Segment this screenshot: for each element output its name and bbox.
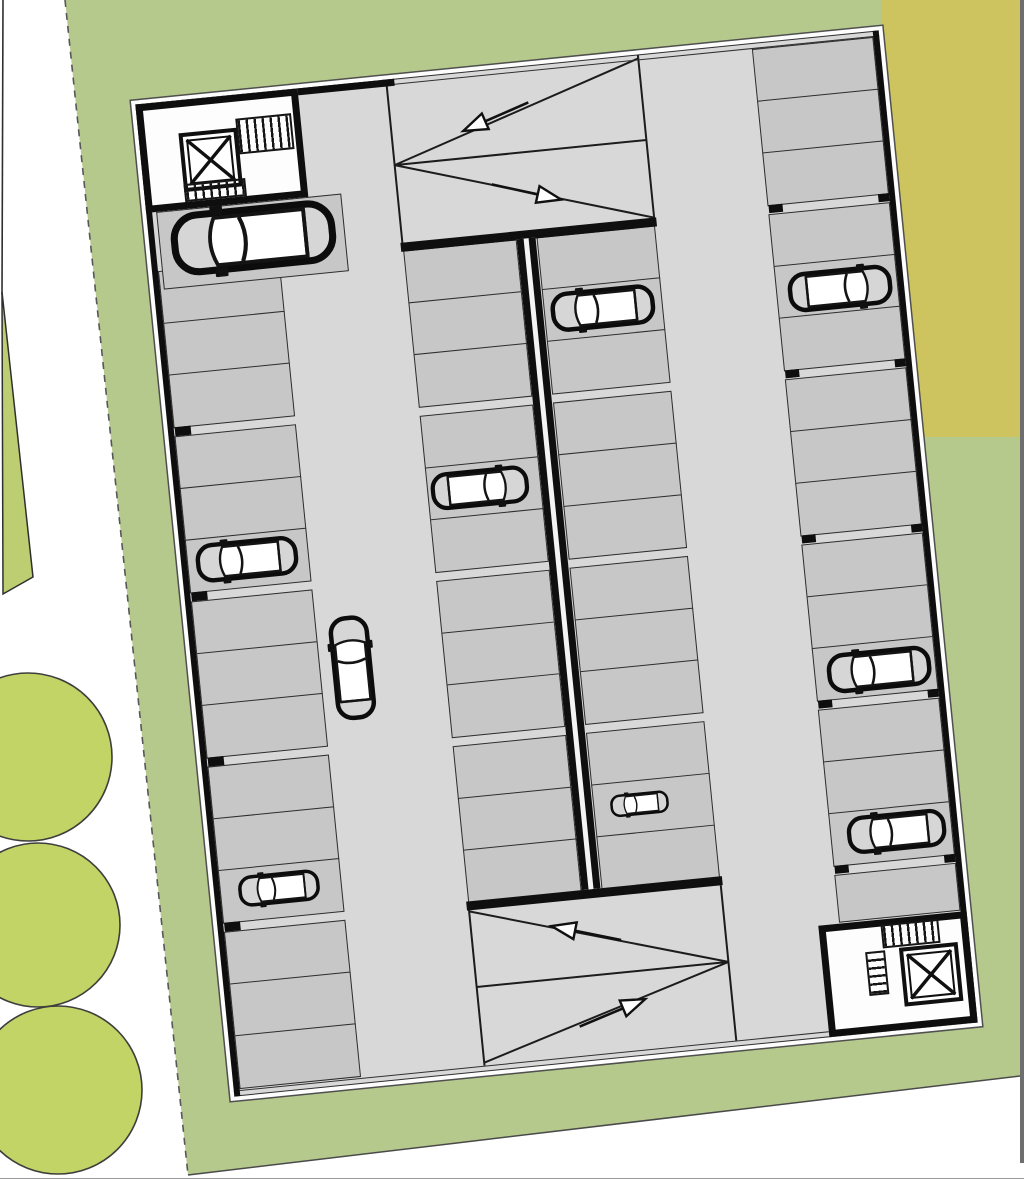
arrow-icon [542, 912, 629, 954]
road-strip [1020, 0, 1024, 1163]
ramp-direction-arrow [483, 170, 571, 213]
ramp-direction-arrow [452, 88, 539, 146]
ramp-direction-arrow [542, 912, 629, 954]
site-boundary-line-left [2, 0, 3, 295]
tree-canopy [0, 843, 120, 1007]
ramp-direction-arrow [569, 984, 657, 1040]
ramp-arrows-layer [135, 30, 977, 1096]
arrow-icon [569, 984, 657, 1040]
parking-garage [135, 30, 977, 1096]
tree-canopy [0, 1006, 142, 1174]
site-plan [0, 0, 1024, 1181]
arrow-icon [452, 88, 539, 146]
tree-canopies [0, 673, 142, 1174]
tree-canopy [0, 673, 112, 841]
planting-wedge [2, 292, 33, 594]
arrow-icon [483, 170, 571, 213]
